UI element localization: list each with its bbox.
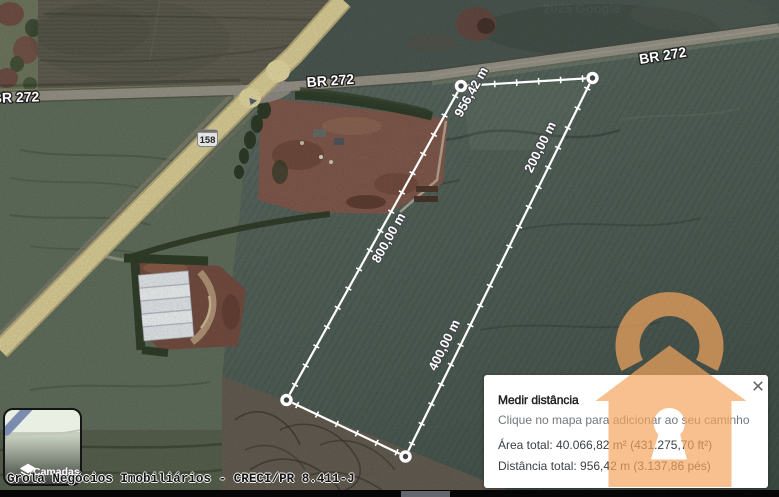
svg-text:2025 Google: 2025 Google: [543, 1, 620, 16]
svg-text:BR 272: BR 272: [306, 71, 355, 90]
svg-text:BR 272: BR 272: [0, 88, 40, 106]
